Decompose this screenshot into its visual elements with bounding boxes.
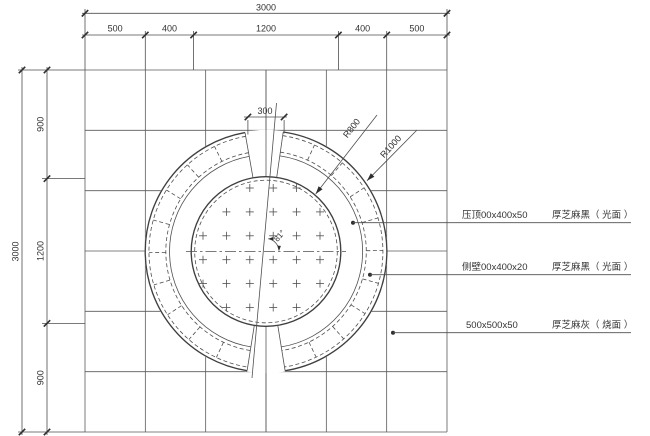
dim-top-seg-5: 500 <box>409 24 424 34</box>
dim-top-seg-4: 400 <box>355 24 370 34</box>
dim-top-seg-1: 500 <box>108 24 123 34</box>
dim-top-seg-3: 1200 <box>256 24 276 34</box>
dim-left-seg-2: 1200 <box>36 241 46 261</box>
dim-top-seg-2: 400 <box>162 24 177 34</box>
dim-gap-width: 300 <box>257 106 272 116</box>
dim-left-total: 3000 <box>11 241 21 261</box>
dim-left-seg-3: 900 <box>36 370 46 385</box>
material-callouts: 压顶00x400x50 厚芝麻黑（ 光面 ） 侧壁00x400x20 厚芝麻黑（… <box>351 209 633 335</box>
drawing-canvas: 81° R800 R1000 3000 500 400 1200 400 500… <box>0 0 650 436</box>
callout-1-spec: 压顶00x400x50 <box>462 210 527 221</box>
dimension-left: 3000 900 1200 900 <box>11 67 86 435</box>
dim-top-total: 3000 <box>256 3 276 13</box>
radius-r1000-label: R1000 <box>378 133 403 159</box>
radius-r800-label: R800 <box>341 117 362 140</box>
dim-left-seg-1: 900 <box>36 117 46 132</box>
callout-2-material: 厚芝麻黑（ 光面 ） <box>552 261 633 273</box>
callout-3-material: 厚芝麻灰（ 烧面 ） <box>552 319 633 331</box>
callout-3-spec: 500x500x50 <box>466 320 518 331</box>
callout-2-spec: 侧壁00x400x20 <box>462 261 527 273</box>
dimension-top: 3000 500 400 1200 400 500 <box>82 3 450 71</box>
plan-drawing: 81° R800 R1000 3000 500 400 1200 400 500… <box>0 0 650 436</box>
callout-1-material: 厚芝麻黑（ 光面 ） <box>552 209 633 221</box>
